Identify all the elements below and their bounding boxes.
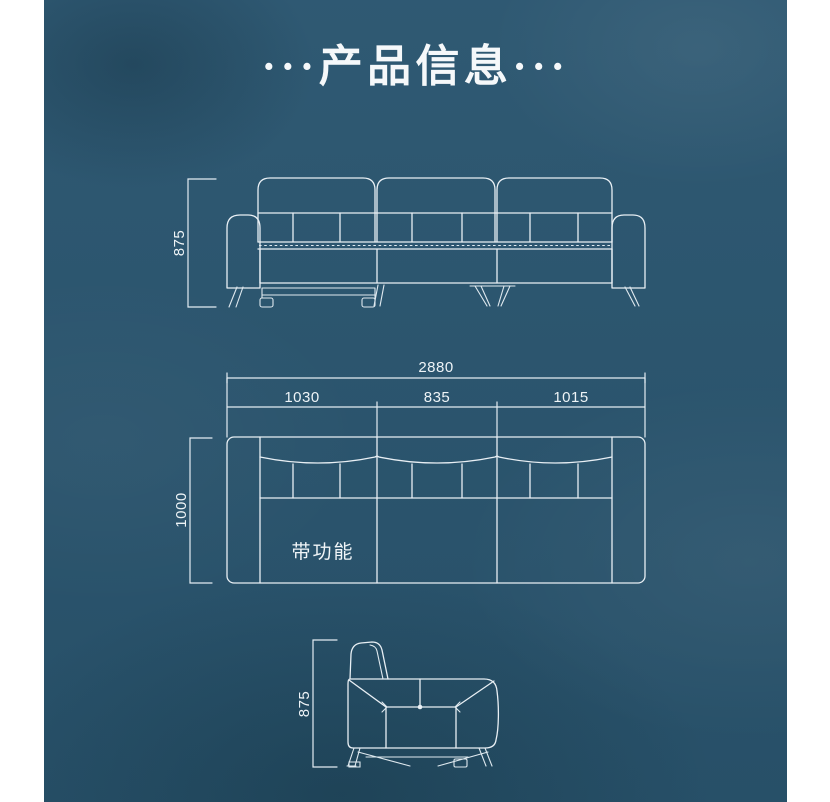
sofa-blueprint-drawing: 875 <box>44 0 787 802</box>
page-title: ···产品信息··· <box>44 30 787 94</box>
left-margin <box>0 0 44 802</box>
front-armrests <box>227 215 645 288</box>
blueprint-canvas: ···产品信息··· 875 <box>44 0 787 802</box>
front-height-label: 875 <box>171 230 188 257</box>
front-base <box>260 249 612 283</box>
plan-feature-label: 带功能 <box>291 541 354 563</box>
front-elevation-view: 875 <box>171 178 645 307</box>
plan-sofa-outline <box>227 437 645 583</box>
plan-segment-left-label: 1030 <box>284 389 319 406</box>
front-seat-seam <box>258 242 612 249</box>
front-height-dimension: 875 <box>171 179 216 307</box>
plan-total-width-label: 2880 <box>418 359 453 376</box>
side-view: 875 <box>296 640 498 767</box>
side-height-label: 875 <box>296 691 313 718</box>
front-footrest-rail <box>260 288 375 307</box>
plan-segment-middle-label: 835 <box>424 389 451 406</box>
side-body <box>348 679 498 748</box>
plan-total-width-dimension: 2880 <box>227 359 645 383</box>
plan-view: 2880 1030 835 1015 1000 <box>173 359 645 583</box>
side-height-dimension: 875 <box>296 640 337 767</box>
plan-segment-dimensions: 1030 835 1015 <box>227 378 645 437</box>
plan-depth-dimension: 1000 <box>173 438 212 583</box>
plan-depth-label: 1000 <box>173 492 190 527</box>
front-back-cushions <box>258 178 612 242</box>
side-legs <box>347 748 492 767</box>
plan-segment-right-label: 1015 <box>553 389 588 406</box>
plan-back-cushions <box>260 456 612 498</box>
right-margin <box>787 0 830 802</box>
product-info-sheet: ···产品信息··· 875 <box>0 0 830 802</box>
side-backrest <box>350 642 388 679</box>
